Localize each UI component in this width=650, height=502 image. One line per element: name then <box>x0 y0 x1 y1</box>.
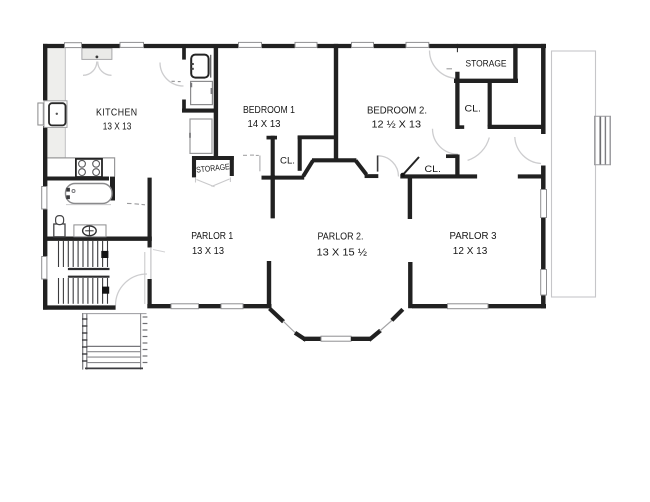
svg-text:CL.: CL. <box>425 164 442 175</box>
svg-text:STORAGE: STORAGE <box>466 59 507 70</box>
svg-text:PARLOR 3: PARLOR 3 <box>450 230 497 242</box>
svg-text:BEDROOM 2.: BEDROOM 2. <box>367 104 427 116</box>
svg-text:13 X 13: 13 X 13 <box>103 121 132 132</box>
svg-text:13 X 13: 13 X 13 <box>192 246 224 257</box>
svg-text:12 ½ X 13: 12 ½ X 13 <box>372 119 422 130</box>
svg-text:12 X 13: 12 X 13 <box>453 246 488 257</box>
svg-text:13 X 15 ½: 13 X 15 ½ <box>317 248 368 259</box>
svg-text:PARLOR 1: PARLOR 1 <box>191 230 233 242</box>
svg-text:BEDROOM 1: BEDROOM 1 <box>243 104 295 116</box>
svg-text:14 X 13: 14 X 13 <box>248 119 281 130</box>
svg-text:KITCHEN: KITCHEN <box>96 106 138 118</box>
svg-text:PARLOR 2.: PARLOR 2. <box>318 231 364 243</box>
svg-text:CL.: CL. <box>465 104 482 115</box>
svg-text:CL.: CL. <box>280 156 295 167</box>
